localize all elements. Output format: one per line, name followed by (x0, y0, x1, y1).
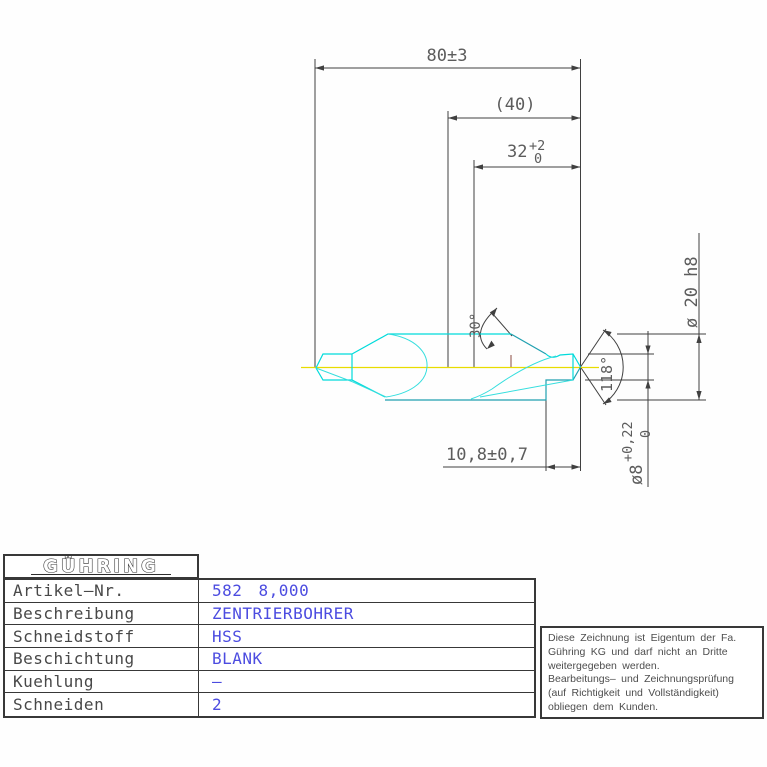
dim-shank-diameter-text: ø 20 h8 (682, 256, 702, 328)
extension-lines (315, 59, 706, 471)
table-row: Kuehlung – (5, 671, 534, 694)
note-line: Gühring KG und darf nicht an Dritte (548, 646, 756, 660)
dim-pilot-length-text: 10,8±0,7 (446, 445, 528, 465)
title-block: GÜHRING Artikel–Nr. 582 8,000 Beschreibu… (3, 554, 536, 718)
dimension-lines (315, 68, 699, 487)
note-line: weitergegeben werden. (548, 660, 756, 674)
dim-step-length-tol-lower: 0 (534, 151, 542, 167)
angle-point-text: 118° (598, 356, 616, 392)
guehring-logo: GÜHRING (5, 556, 197, 577)
row-value-schneiden: 2 (199, 693, 534, 716)
table-row: Artikel–Nr. 582 8,000 (5, 580, 534, 603)
dimension-texts: 80±3 (40) 32 +2 0 10,8±0,7 ø 20 h8 ø8 +0… (427, 46, 702, 485)
dim-ref-length-text: (40) (495, 95, 536, 115)
table-row: Beschreibung ZENTRIERBOHRER (5, 603, 534, 626)
angle-countersink-text: 30° (468, 313, 484, 338)
row-value-artikel-nr: 582 8,000 (199, 580, 534, 602)
dim-step-length-text: 32 (507, 142, 527, 162)
row-value-kuehlung: – (199, 671, 534, 693)
table-row: Beschichtung BLANK (5, 648, 534, 671)
table-row: Schneidstoff HSS (5, 625, 534, 648)
row-label-beschreibung: Beschreibung (5, 603, 199, 625)
row-label-beschichtung: Beschichtung (5, 648, 199, 670)
dim-pilot-diameter-tol-lower: 0 (638, 430, 654, 438)
row-value-schneidstoff: HSS (199, 625, 534, 647)
note-line: Bearbeitungs– und Zeichnungsprüfung (548, 673, 756, 687)
dimension-arrows (315, 65, 702, 469)
row-label-kuehlung: Kuehlung (5, 671, 199, 693)
note-line: Diese Zeichnung ist Eigentum der Fa. (548, 632, 756, 646)
dim-overall-length-text: 80±3 (427, 46, 468, 66)
row-label-artikel-nr: Artikel–Nr. (5, 580, 199, 602)
row-label-schneidstoff: Schneidstoff (5, 625, 199, 647)
logo-text: GÜHRING (43, 556, 159, 577)
table-row: Schneiden 2 (5, 693, 534, 716)
cad-drawing-page: 80±3 (40) 32 +2 0 10,8±0,7 ø 20 h8 ø8 +0… (0, 0, 767, 767)
row-label-schneiden: Schneiden (5, 693, 199, 716)
note-line: (auf Richtigkeit und Vollständigkeit) (548, 687, 756, 701)
note-line: obliegen dem Kunden. (548, 701, 756, 715)
ownership-note-box: Diese Zeichnung ist Eigentum der Fa. Güh… (540, 626, 764, 719)
logo-box: GÜHRING (3, 554, 199, 579)
dim-pilot-diameter-text: ø8 (627, 465, 647, 485)
title-block-rows: Artikel–Nr. 582 8,000 Beschreibung ZENTR… (3, 578, 536, 718)
row-value-beschichtung: BLANK (199, 648, 534, 670)
dim-pilot-diameter-tol-upper: +0,22 (620, 421, 636, 462)
flute-curves (316, 334, 573, 399)
row-value-beschreibung: ZENTRIERBOHRER (199, 603, 534, 625)
